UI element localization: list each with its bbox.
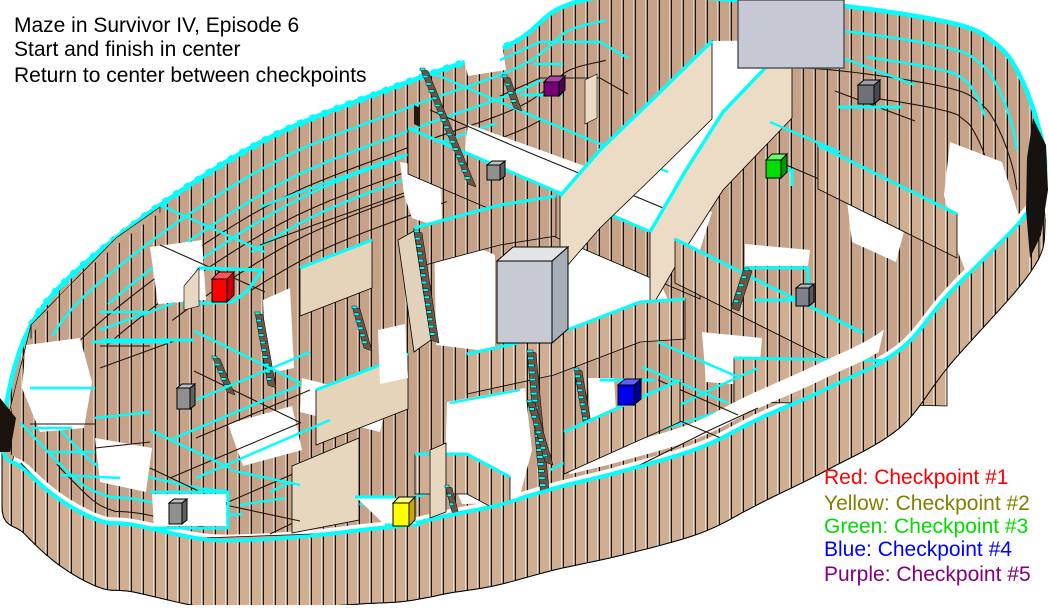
svg-text:Yellow: Checkpoint #2: Yellow: Checkpoint #2 bbox=[824, 492, 1030, 515]
svg-text:Return to center between check: Return to center between checkpoints bbox=[14, 64, 367, 87]
svg-text:Blue: Checkpoint #4: Blue: Checkpoint #4 bbox=[824, 538, 1012, 561]
svg-text:Red: Checkpoint #1: Red: Checkpoint #1 bbox=[824, 466, 1008, 489]
svg-text:Green: Checkpoint #3: Green: Checkpoint #3 bbox=[824, 515, 1028, 538]
svg-text:Maze in Survivor IV, Episode 6: Maze in Survivor IV, Episode 6 bbox=[14, 14, 299, 37]
svg-text:Purple: Checkpoint #5: Purple: Checkpoint #5 bbox=[824, 563, 1031, 586]
svg-text:Start and finish in center: Start and finish in center bbox=[14, 38, 240, 61]
